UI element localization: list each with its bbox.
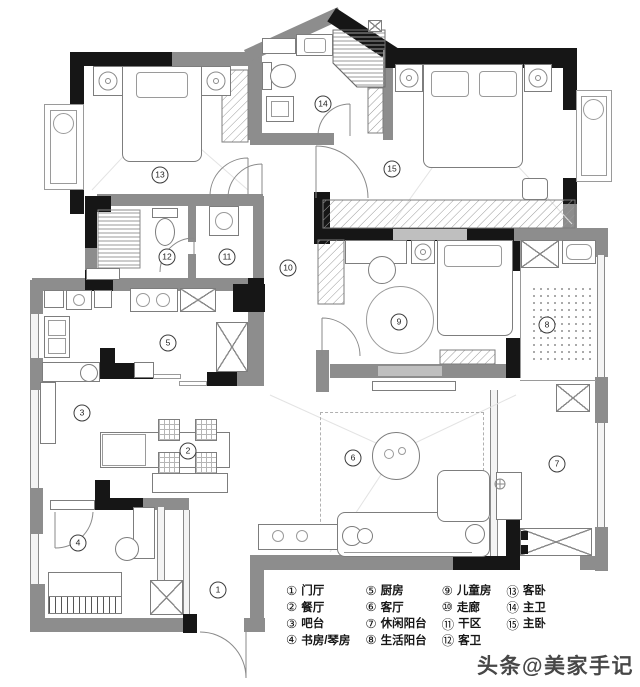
legend-item-number: ⑤ (365, 583, 376, 598)
legend-item: ⑩走廊 (442, 599, 492, 616)
legend-item-number: ④ (286, 632, 297, 647)
nightstand (201, 66, 231, 96)
watermark: 头条@美家手记 (477, 650, 634, 680)
legend-item: ⑭主卫 (506, 599, 546, 616)
room-marker-15: 15 (384, 161, 401, 178)
legend-item-label: 干区 (458, 615, 481, 631)
legend-item: ⑮主卧 (506, 615, 546, 632)
legend-item-label: 休闲阳台 (381, 615, 427, 631)
legend-item-label: 儿童房 (457, 582, 492, 598)
legend-item-label: 吧台 (301, 615, 324, 631)
nightstand (411, 240, 435, 264)
room-marker-8: 8 (539, 317, 556, 334)
room-marker-4: 4 (70, 535, 87, 552)
legend-item: ⑨儿童房 (442, 582, 492, 599)
nightstand (395, 64, 423, 92)
toilet-bowl (270, 64, 296, 88)
legend-item-number: ② (286, 599, 297, 614)
legend-item-label: 餐厅 (301, 599, 324, 615)
room-marker-2: 2 (180, 443, 197, 460)
legend-item-number: ⑩ (442, 599, 453, 614)
pillow (479, 71, 517, 97)
legend-item-number: ⑦ (365, 616, 376, 631)
stool (522, 178, 548, 200)
legend-item: ⑤厨房 (365, 582, 426, 599)
chair (195, 452, 217, 474)
legend-item-label: 主卧 (523, 615, 546, 631)
stool (115, 537, 139, 561)
legend-item-number: ① (286, 583, 297, 598)
bar-basin (80, 364, 98, 382)
room-marker-10: 10 (280, 260, 297, 277)
bench (152, 473, 228, 493)
sofa-chaise (437, 470, 490, 522)
chair (158, 452, 180, 474)
plant-box (556, 384, 590, 412)
room-marker-6: 6 (345, 450, 362, 467)
plant (53, 113, 74, 134)
legend-item: ①门厅 (286, 582, 350, 599)
legend-item: ③吧台 (286, 615, 350, 632)
room-marker-14: 14 (315, 96, 332, 113)
room-marker-5: 5 (160, 335, 177, 352)
legend-item: ④书房/琴房 (286, 632, 350, 649)
vanity (86, 268, 120, 280)
legend-item: ②餐厅 (286, 599, 350, 616)
nightstand (524, 64, 552, 92)
sofa-pillow (357, 528, 373, 544)
door-panel (496, 472, 522, 520)
shelf (50, 500, 95, 510)
basin (304, 38, 326, 53)
legend-item-number: ⑨ (442, 583, 453, 598)
legend-item-label: 厨房 (381, 582, 404, 598)
balcony-cabinet (520, 528, 592, 556)
legend-item-label: 生活阳台 (381, 632, 427, 648)
piano-keys (48, 596, 122, 614)
legend-item: ⑪干区 (442, 615, 492, 632)
tv-console (372, 381, 456, 391)
pillow (136, 72, 188, 98)
legend-item-label: 客厅 (381, 599, 404, 615)
legend-item-number: ③ (286, 616, 297, 631)
chair (158, 419, 180, 441)
legend-item-label: 客卧 (523, 582, 546, 598)
small-sink (134, 362, 154, 378)
floorplan-page: 123456789101112131415 ①门厅②餐厅③吧台④书房/琴房⑤厨房… (0, 0, 640, 687)
chair (195, 419, 217, 441)
legend-item: ⑫客卫 (442, 632, 492, 649)
legend-item-number: ⑥ (365, 599, 376, 614)
legend-item-label: 门厅 (301, 582, 324, 598)
room-marker-7: 7 (549, 456, 566, 473)
nightstand (93, 66, 123, 96)
room-marker-12: 12 (159, 249, 176, 266)
legend-item-number: ⑧ (365, 632, 376, 647)
washing-machine (521, 240, 559, 268)
sofa-pillow (465, 524, 485, 544)
room-marker-1: 1 (210, 582, 227, 599)
legend-item-label: 走廊 (457, 599, 480, 615)
legend-item-label: 书房/琴房 (301, 632, 350, 648)
legend-item-label: 主卫 (523, 599, 546, 615)
fridge (216, 322, 248, 372)
plant (583, 99, 604, 120)
toilet-tank (152, 208, 178, 218)
room-marker-13: 13 (152, 167, 169, 184)
room-marker-11: 11 (219, 249, 236, 266)
room-marker-9: 9 (391, 314, 408, 331)
legend-item-number: ⑫ (442, 630, 455, 649)
vent (368, 20, 382, 32)
legend-item-number: ⑮ (506, 614, 519, 633)
legend-item: ⑥客厅 (365, 599, 426, 616)
legend-item-label: 客卫 (458, 632, 481, 648)
coffee-table (372, 432, 420, 480)
desk-chair (368, 256, 396, 284)
legend: ①门厅②餐厅③吧台④书房/琴房⑤厨房⑥客厅⑦休闲阳台⑧生活阳台⑨儿童房⑩走廊⑪干… (286, 582, 546, 648)
vanity-counter (262, 38, 296, 54)
legend-item: ⑬客卧 (506, 582, 546, 599)
legend-item: ⑦休闲阳台 (365, 615, 426, 632)
pillow (431, 71, 469, 97)
room-marker-3: 3 (74, 405, 91, 422)
shoe-cabinet (150, 580, 183, 615)
toilet-bowl (155, 218, 175, 246)
legend-item: ⑧生活阳台 (365, 632, 426, 649)
pillow (444, 245, 502, 267)
